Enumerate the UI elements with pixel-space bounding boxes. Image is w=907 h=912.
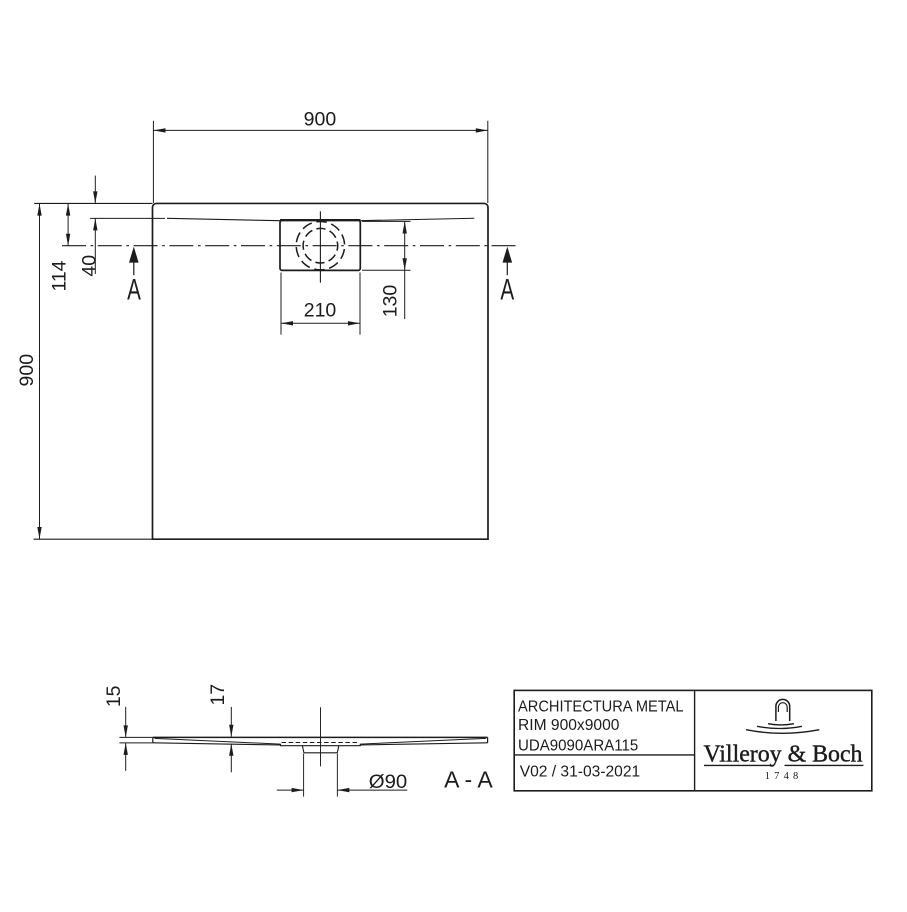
svg-text:40: 40: [78, 255, 100, 277]
svg-text:A: A: [127, 274, 141, 307]
svg-text:210: 210: [304, 299, 337, 321]
svg-text:V02 / 31-03-2021: V02 / 31-03-2021: [520, 763, 641, 780]
svg-text:15: 15: [103, 685, 125, 707]
svg-text:RIM 900x9000: RIM 900x9000: [518, 717, 620, 734]
svg-text:A: A: [500, 274, 514, 307]
svg-text:130: 130: [379, 285, 401, 318]
svg-text:1748: 1748: [765, 771, 803, 782]
svg-text:Ø90: Ø90: [369, 771, 408, 793]
svg-text:Villeroy & Boch: Villeroy & Boch: [704, 742, 863, 768]
svg-text:UDA9090ARA115: UDA9090ARA115: [518, 738, 639, 755]
svg-text:900: 900: [304, 109, 337, 131]
svg-text:ARCHITECTURA METAL: ARCHITECTURA METAL: [518, 698, 684, 715]
svg-text:900: 900: [16, 354, 38, 387]
svg-text:114: 114: [48, 260, 70, 291]
svg-text:A - A: A - A: [444, 766, 493, 792]
svg-text:17: 17: [207, 684, 229, 706]
